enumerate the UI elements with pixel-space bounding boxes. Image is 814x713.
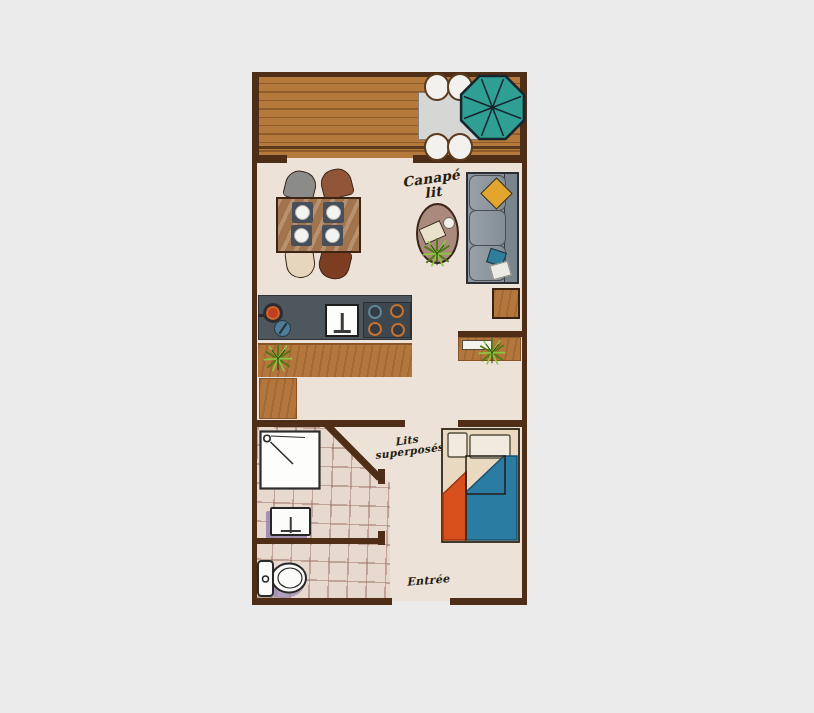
wall-middle-right bbox=[458, 420, 527, 427]
frying-pan-icon bbox=[274, 320, 291, 337]
dining-table bbox=[276, 197, 361, 253]
place-setting bbox=[323, 202, 344, 223]
floor-plan: Canapé lit bbox=[252, 72, 527, 605]
faucet-icon bbox=[341, 313, 344, 330]
plant-icon bbox=[420, 235, 454, 269]
toilet-icon bbox=[256, 559, 316, 601]
bunk-beds bbox=[440, 427, 520, 544]
side-table bbox=[492, 288, 520, 319]
wall-living-top-left bbox=[252, 155, 287, 163]
burner-icon bbox=[368, 305, 382, 319]
plate-icon bbox=[443, 217, 455, 229]
place-setting bbox=[292, 202, 313, 223]
kitchen-counter-return bbox=[259, 378, 297, 419]
place-setting bbox=[322, 225, 343, 246]
screenshot-canvas: { "canvas": { "width": 814, "height": 71… bbox=[0, 0, 814, 713]
burner-icon bbox=[391, 323, 405, 337]
sofa-cushion bbox=[469, 210, 506, 246]
shower-icon bbox=[259, 430, 321, 490]
plant-icon bbox=[261, 340, 295, 374]
deck-edge-line bbox=[252, 146, 527, 149]
wall-wc-divider bbox=[252, 538, 378, 544]
stove-icon bbox=[363, 302, 411, 338]
kitchen-sink-icon bbox=[325, 304, 359, 337]
wall-diagonal-cap bbox=[378, 469, 385, 484]
wall-bottom-right bbox=[450, 598, 527, 605]
washbasin-icon bbox=[270, 507, 311, 536]
burner-icon bbox=[368, 322, 382, 336]
wall-wc-divider-cap bbox=[378, 531, 385, 545]
wall-bottom-left bbox=[252, 598, 392, 605]
parasol-icon bbox=[455, 70, 530, 145]
burner-icon bbox=[390, 304, 404, 318]
place-setting bbox=[291, 225, 312, 246]
plant-icon bbox=[476, 335, 508, 367]
